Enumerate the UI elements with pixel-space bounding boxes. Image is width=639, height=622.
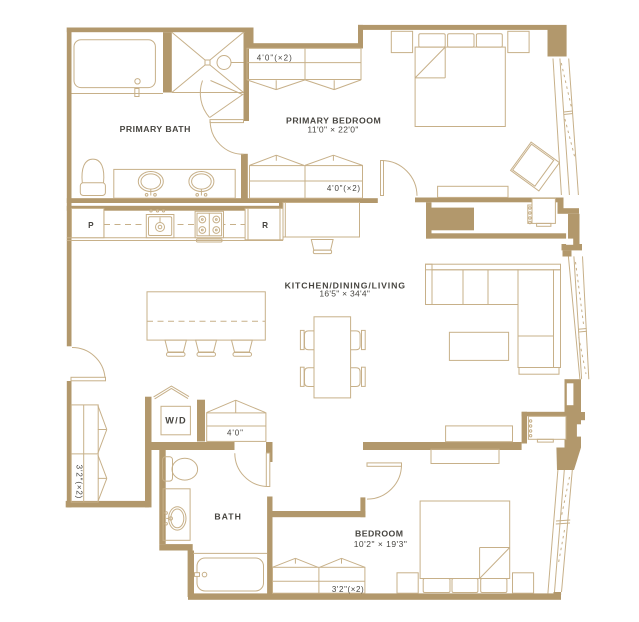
svg-text:BEDROOM: BEDROOM xyxy=(355,528,403,538)
svg-text:10'2" × 19'3": 10'2" × 19'3" xyxy=(354,539,407,549)
svg-text:4'0"(×2): 4'0"(×2) xyxy=(327,184,361,193)
svg-text:P: P xyxy=(88,221,94,230)
svg-text:4'0": 4'0" xyxy=(227,429,243,438)
svg-text:4'0"(×2): 4'0"(×2) xyxy=(257,53,292,62)
svg-text:3'2"(×2): 3'2"(×2) xyxy=(75,465,84,499)
svg-text:BATH: BATH xyxy=(214,512,241,522)
svg-text:16'5" × 34'4": 16'5" × 34'4" xyxy=(319,288,370,298)
svg-text:3'2"(×2): 3'2"(×2) xyxy=(332,585,364,594)
svg-text:11'0" × 22'0": 11'0" × 22'0" xyxy=(307,125,358,135)
svg-text:W/D: W/D xyxy=(165,415,186,425)
svg-text:PRIMARY BATH: PRIMARY BATH xyxy=(120,124,191,134)
svg-text:R: R xyxy=(262,221,268,230)
